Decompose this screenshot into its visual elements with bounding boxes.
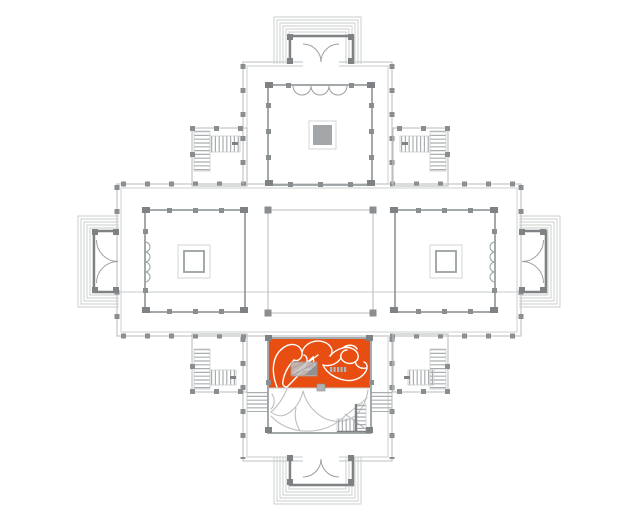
door-swing [97,240,119,283]
north-vestibule [287,34,354,64]
north-room-plinth [313,125,332,145]
west-room [142,207,248,314]
north-room [265,82,375,187]
north-arm-walls [243,62,392,184]
south-vestibule [287,455,354,485]
north-portico-steps [274,17,361,64]
northeast-stair-block [393,126,450,186]
west-portico-steps [78,216,119,307]
southeast-stair-block [393,334,450,394]
east-room [390,207,498,314]
southwest-stair-block [190,334,247,394]
west-vestibule [92,229,119,293]
south-room [265,335,374,433]
floor-plan-svg [0,0,630,526]
door-swing [303,459,339,477]
northwest-stair-block [190,126,247,186]
door-swing [522,240,544,283]
door-swing [293,86,347,95]
south-room-inner-stair [291,362,317,376]
central-hall [265,207,377,317]
door-swing [303,44,339,62]
floor-plan-canvas [0,0,630,526]
south-room-threshold [317,384,325,391]
east-vestibule [519,229,546,293]
